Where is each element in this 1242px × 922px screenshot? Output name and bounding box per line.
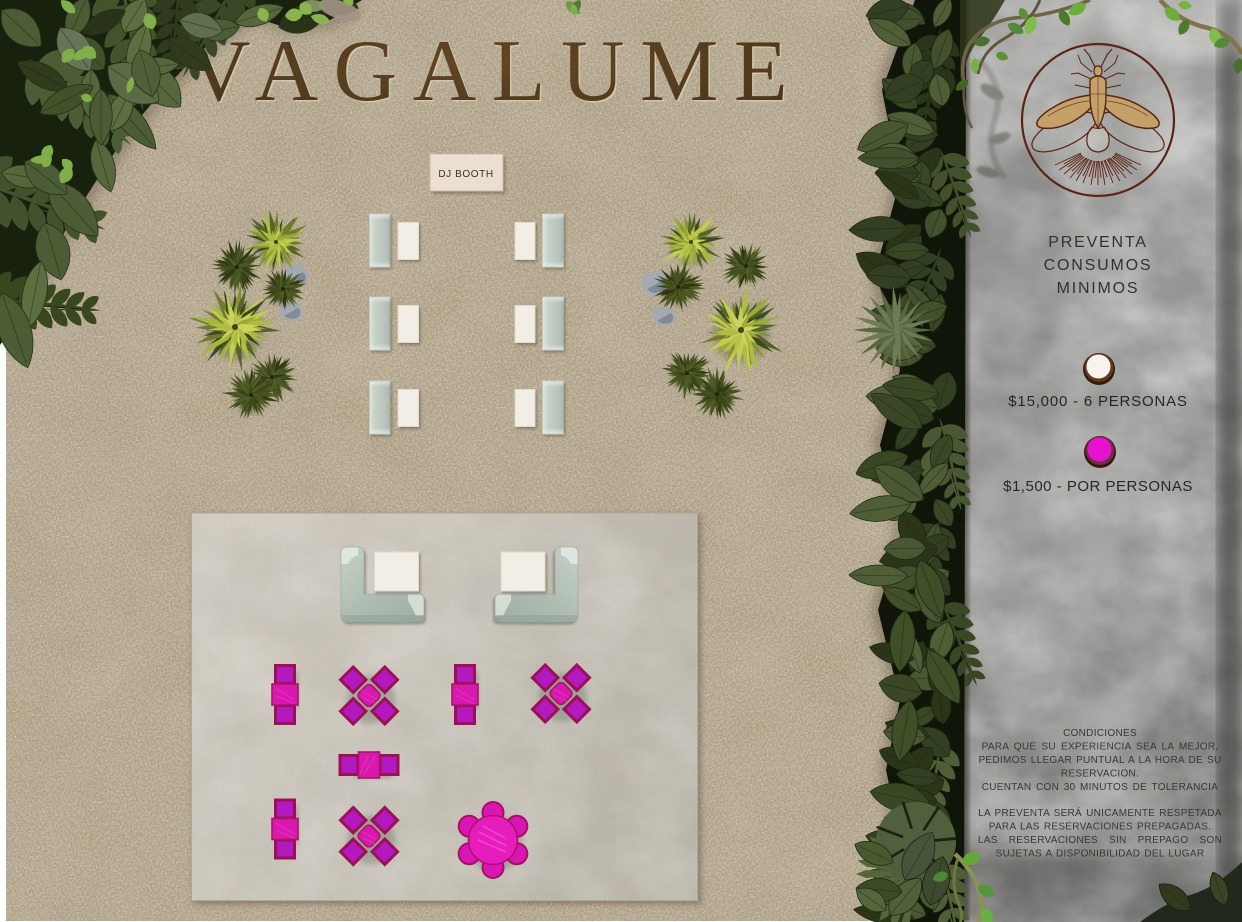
svg-text:SUJETAS A DISPONIBILIDAD DEL L: SUJETAS A DISPONIBILIDAD DEL LUGAR — [996, 849, 1205, 860]
svg-text:PARA QUE SU EXPERIENCIA SEA LA: PARA QUE SU EXPERIENCIA SEA LA MEJOR, — [982, 742, 1219, 753]
svg-text:VAGALUME: VAGALUME — [187, 23, 803, 120]
svg-text:PEDIMOS LLEGAR PUNTUAL A LA HO: PEDIMOS LLEGAR PUNTUAL A LA HORA DE SU — [978, 755, 1221, 766]
svg-text:CONSUMOS: CONSUMOS — [1044, 257, 1153, 274]
svg-text:RESERVACION.: RESERVACION. — [1061, 769, 1139, 780]
svg-text:PREVENTA: PREVENTA — [1048, 234, 1147, 251]
svg-text:CUENTAN CON 30 MINUTOS DE TOLE: CUENTAN CON 30 MINUTOS DE TOLERANCIA — [982, 782, 1219, 793]
svg-text:LA PREVENTA SERÁ UNICAMENTE RE: LA PREVENTA SERÁ UNICAMENTE RESPETADA — [978, 806, 1222, 819]
svg-text:CONDICIONES: CONDICIONES — [1063, 728, 1137, 739]
svg-text:$15,000 - 6 PERSONAS: $15,000 - 6 PERSONAS — [1008, 393, 1187, 410]
svg-text:MINIMOS: MINIMOS — [1057, 280, 1140, 297]
svg-text:DJ BOOTH: DJ BOOTH — [438, 169, 493, 180]
svg-text:LAS RESERVACIONES SIN PREPAGO: LAS RESERVACIONES SIN PREPAGO SON — [978, 835, 1222, 846]
svg-text:PARA LAS RESERVACIONES PREPAGA: PARA LAS RESERVACIONES PREPAGADAS. — [989, 822, 1212, 833]
svg-text:$1,500 - POR PERSONAS: $1,500 - POR PERSONAS — [1003, 478, 1193, 495]
